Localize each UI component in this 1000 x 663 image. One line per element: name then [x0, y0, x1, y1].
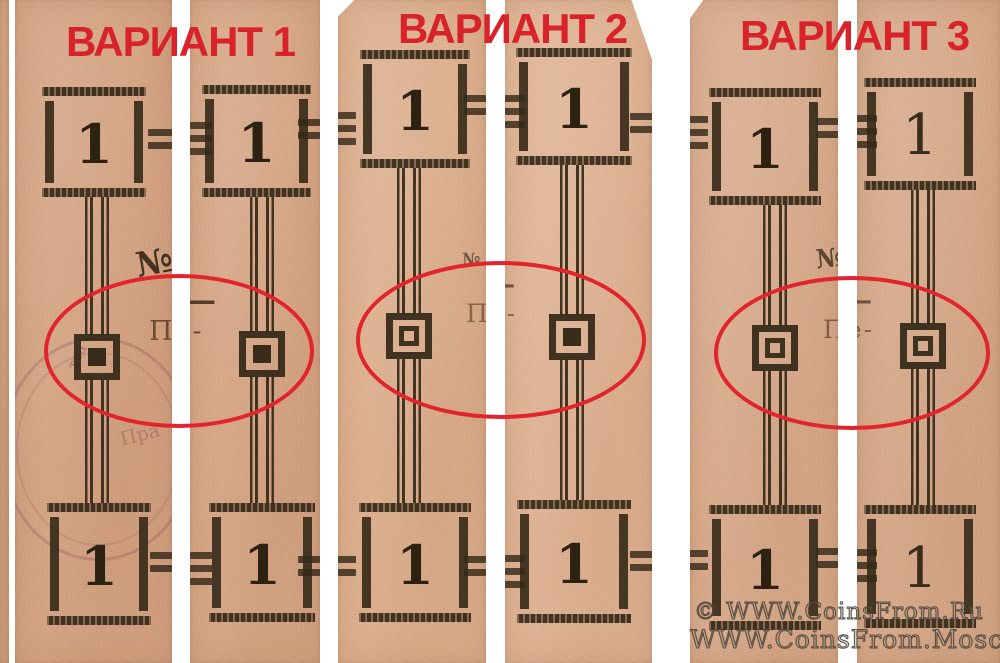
cut-mark [505, 568, 525, 575]
cut-mark [857, 549, 877, 556]
cut-mark [690, 550, 708, 557]
coupon-value: 1 [243, 538, 281, 592]
value-box-top: 1 [867, 78, 973, 190]
cut-mark [505, 581, 525, 588]
value-box-top: 1 [712, 88, 818, 205]
watermark-line-1: © WWW.CoinsFrom.Ru [694, 601, 984, 624]
box-side-bar [964, 92, 973, 176]
cut-mark [338, 125, 356, 132]
cut-mark [190, 122, 212, 129]
cut-mark [148, 142, 172, 149]
coupon-value: 1 [746, 543, 784, 597]
cut-mark [690, 563, 708, 570]
cut-mark [857, 115, 877, 122]
box-side-bar [212, 517, 221, 608]
cut-mark [298, 132, 320, 139]
cut-mark [857, 128, 877, 135]
cut-mark [630, 113, 652, 120]
cut-mark [338, 556, 356, 563]
variant-1-title: ВАРИАНТ 1 [66, 21, 295, 63]
cut-mark [464, 556, 486, 563]
cut-mark [505, 95, 525, 102]
cut-mark [190, 565, 212, 572]
box-side-bar [362, 517, 371, 608]
cut-mark [857, 141, 877, 148]
annotation-ellipse-variant-1 [44, 274, 314, 428]
box-side-bar [619, 514, 628, 609]
cut-mark [464, 95, 486, 102]
variant-2-title: ВАРИАНТ 2 [398, 8, 627, 50]
scan-gap [9, 0, 15, 663]
annotation-ellipse-variant-3 [714, 276, 990, 430]
coupon-value: 1 [80, 539, 118, 593]
cut-mark [298, 556, 320, 563]
watermark-line-2: WWW.CoinsFrom.Moscow [690, 627, 1000, 652]
coupon-value: 1 [238, 116, 276, 170]
coupon-value: 1 [746, 122, 784, 176]
box-side-bar [620, 62, 629, 151]
variant-3-title: ВАРИАНТ 3 [740, 15, 969, 57]
coupon-value: 1 [396, 84, 434, 138]
cut-mark [505, 555, 525, 562]
cut-mark [148, 129, 172, 136]
coupon-value: 1 [555, 82, 593, 136]
cut-mark [190, 552, 212, 559]
box-side-bar [50, 517, 59, 611]
cut-mark [298, 119, 320, 126]
cut-mark [816, 548, 838, 555]
coupon-value: 1 [396, 538, 434, 592]
coupon-value: 1 [555, 537, 593, 591]
cut-mark [338, 569, 356, 576]
cut-mark [150, 552, 172, 559]
cut-mark [464, 108, 486, 115]
cut-mark [816, 561, 838, 568]
cut-mark [190, 578, 212, 585]
coupon-variants-collage: тва Пра 1 1 1 [0, 0, 1000, 663]
cut-mark [630, 551, 652, 558]
value-box-bottom: 1 [520, 500, 628, 623]
value-box-top: 1 [363, 50, 467, 168]
coupon-value: 1 [75, 117, 113, 171]
cut-mark [338, 112, 356, 119]
annotation-ellipse-variant-2 [356, 261, 646, 419]
cut-mark [816, 118, 838, 125]
box-side-bar [363, 64, 372, 154]
cut-mark [298, 569, 320, 576]
cut-mark [150, 565, 172, 572]
cut-mark [464, 569, 486, 576]
coupon-value: 1 [902, 108, 938, 164]
cut-mark [690, 142, 708, 149]
value-box-top: 1 [205, 85, 308, 197]
value-box-top: 1 [519, 48, 629, 165]
box-side-bar [299, 99, 308, 183]
paper-strip-edge-sliver [0, 0, 9, 663]
cut-mark [338, 138, 356, 145]
box-side-bar [809, 102, 818, 191]
cut-mark [690, 116, 708, 123]
cut-mark [857, 562, 877, 569]
cut-mark [190, 148, 212, 155]
value-box-bottom: 1 [362, 503, 468, 622]
cut-mark [505, 108, 525, 115]
cut-mark [505, 121, 525, 128]
box-side-bar [712, 102, 721, 191]
cut-mark [630, 564, 652, 571]
box-side-bar [134, 101, 143, 183]
value-box-top: 1 [45, 87, 143, 197]
cut-mark [857, 575, 877, 582]
cut-mark [690, 129, 708, 136]
box-side-bar [45, 101, 54, 183]
scan-gap [652, 0, 690, 663]
cut-mark [630, 126, 652, 133]
cut-mark [190, 135, 212, 142]
box-side-bar [139, 517, 148, 611]
scan-gap [320, 0, 338, 663]
box-side-bar [519, 62, 528, 151]
value-box-bottom: 1 [212, 503, 312, 622]
value-box-bottom: 1 [50, 503, 148, 625]
coupon-value: 1 [902, 541, 938, 597]
cut-mark [816, 131, 838, 138]
